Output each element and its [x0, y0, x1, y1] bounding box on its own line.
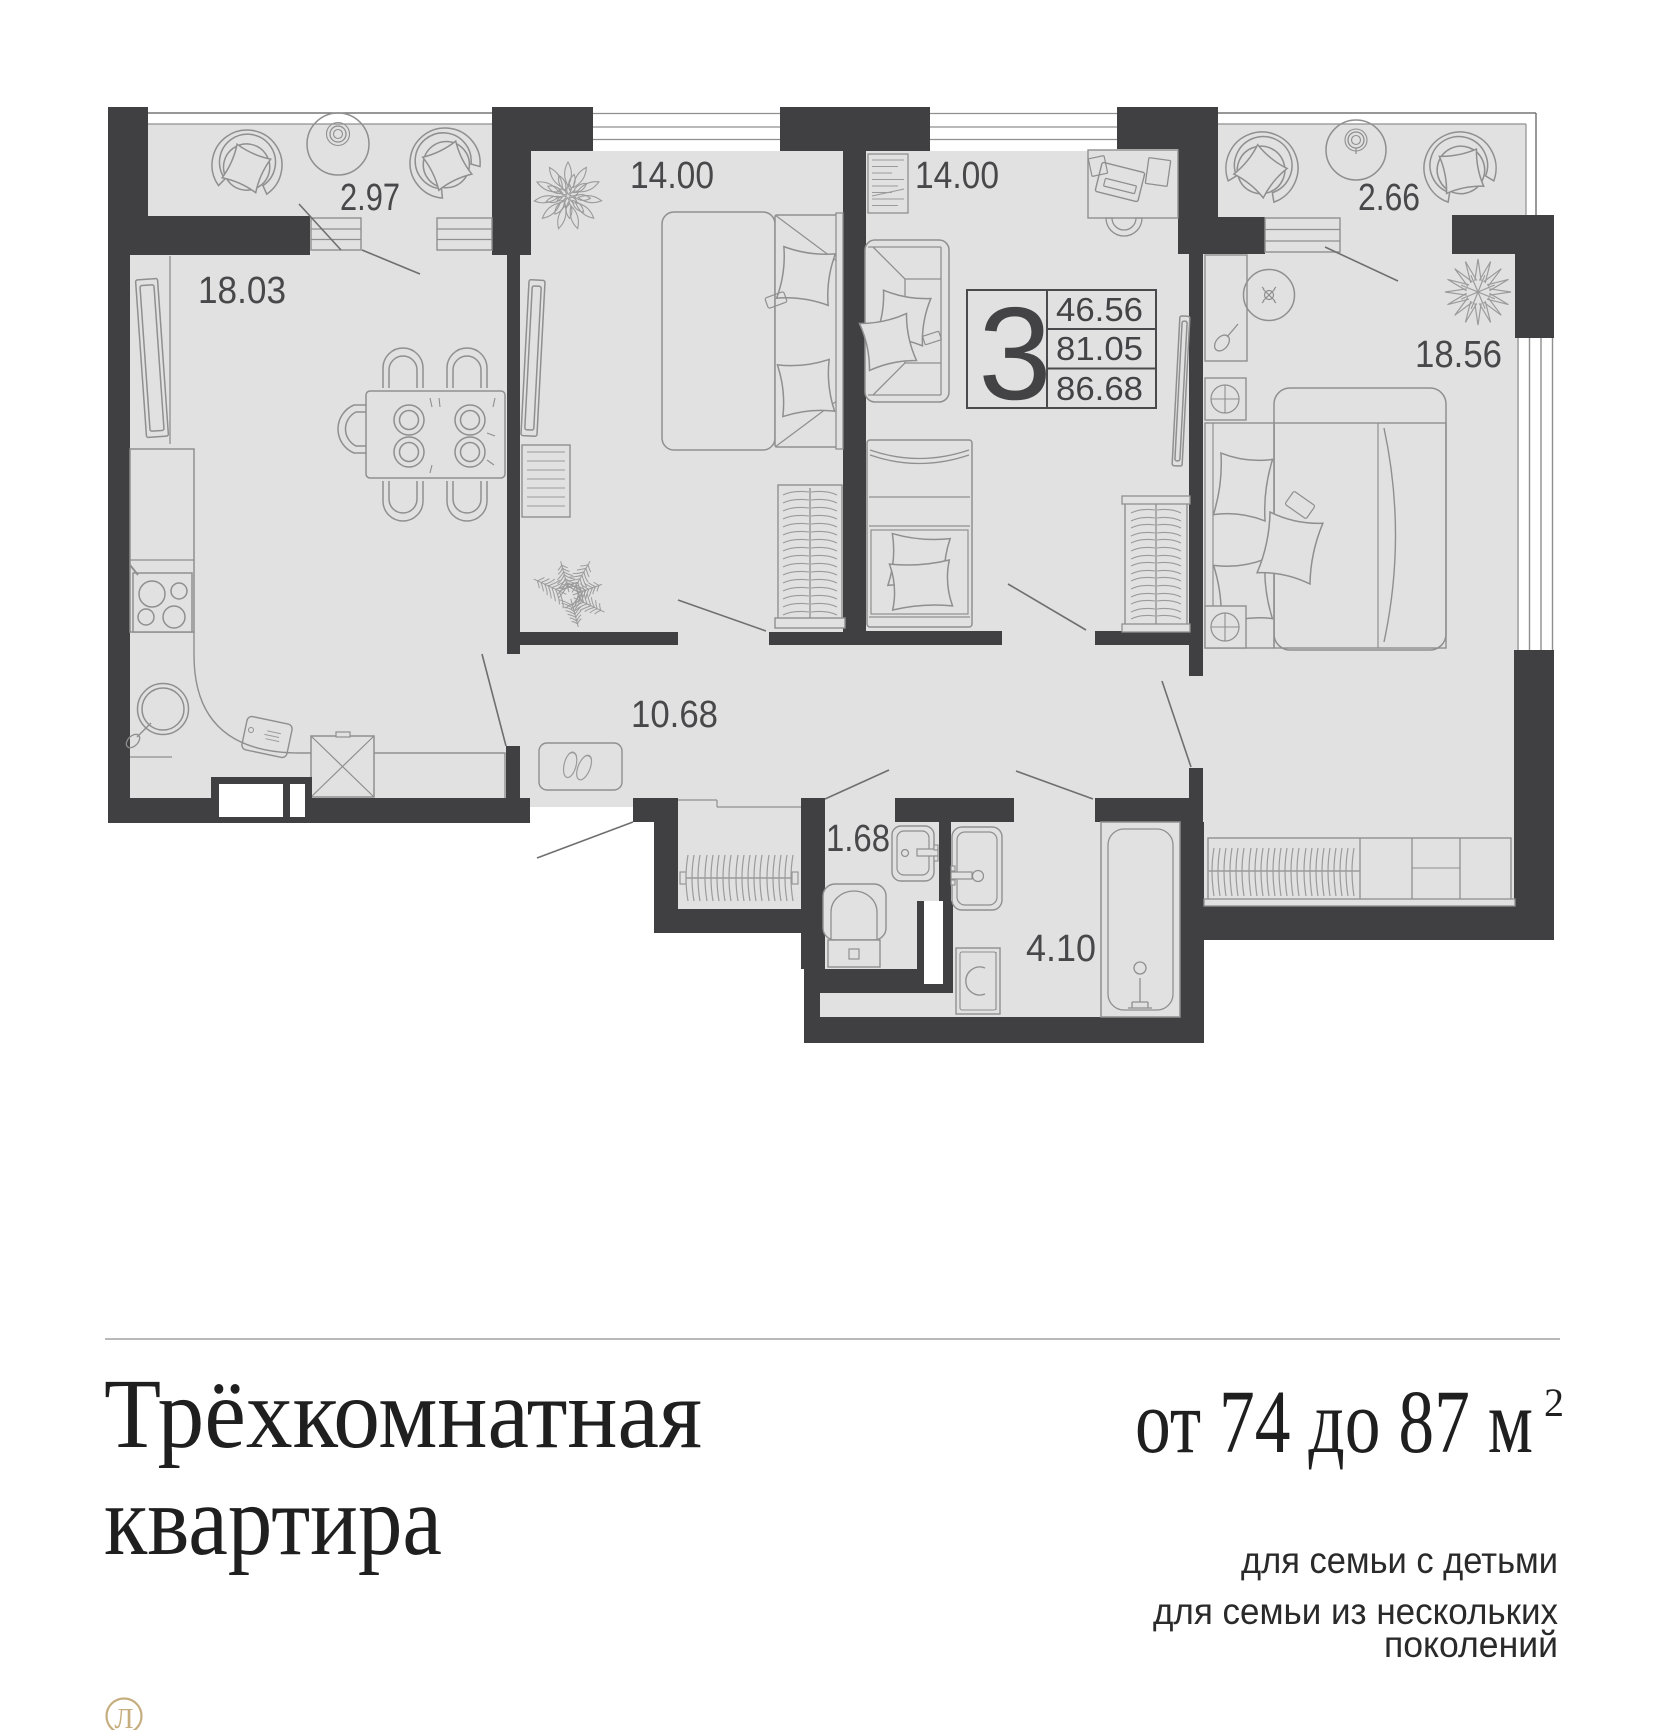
svg-text:Трёхкомнатная: Трёхкомнатная	[104, 1358, 702, 1469]
svg-text:14.00: 14.00	[915, 155, 999, 197]
svg-text:поколений: поколений	[1384, 1624, 1558, 1665]
svg-text:от 74 до 87 м: от 74 до 87 м	[1135, 1373, 1533, 1472]
svg-text:46.56: 46.56	[1056, 291, 1143, 328]
svg-text:1.68: 1.68	[826, 818, 890, 860]
svg-text:86.68: 86.68	[1056, 370, 1143, 407]
svg-text:3: 3	[978, 280, 1051, 427]
svg-text:81.05: 81.05	[1056, 330, 1143, 367]
svg-text:14.00: 14.00	[630, 155, 714, 197]
svg-text:Л: Л	[115, 1704, 134, 1730]
svg-text:2.97: 2.97	[340, 177, 400, 219]
svg-text:18.56: 18.56	[1415, 334, 1502, 376]
svg-text:2.66: 2.66	[1358, 177, 1420, 219]
svg-text:10.68: 10.68	[631, 694, 718, 736]
svg-text:18.03: 18.03	[198, 270, 286, 312]
svg-text:2: 2	[1544, 1380, 1564, 1425]
svg-text:квартира: квартира	[104, 1465, 442, 1576]
svg-text:для семьи с детьми: для семьи с детьми	[1241, 1540, 1558, 1581]
svg-text:4.10: 4.10	[1026, 928, 1096, 970]
